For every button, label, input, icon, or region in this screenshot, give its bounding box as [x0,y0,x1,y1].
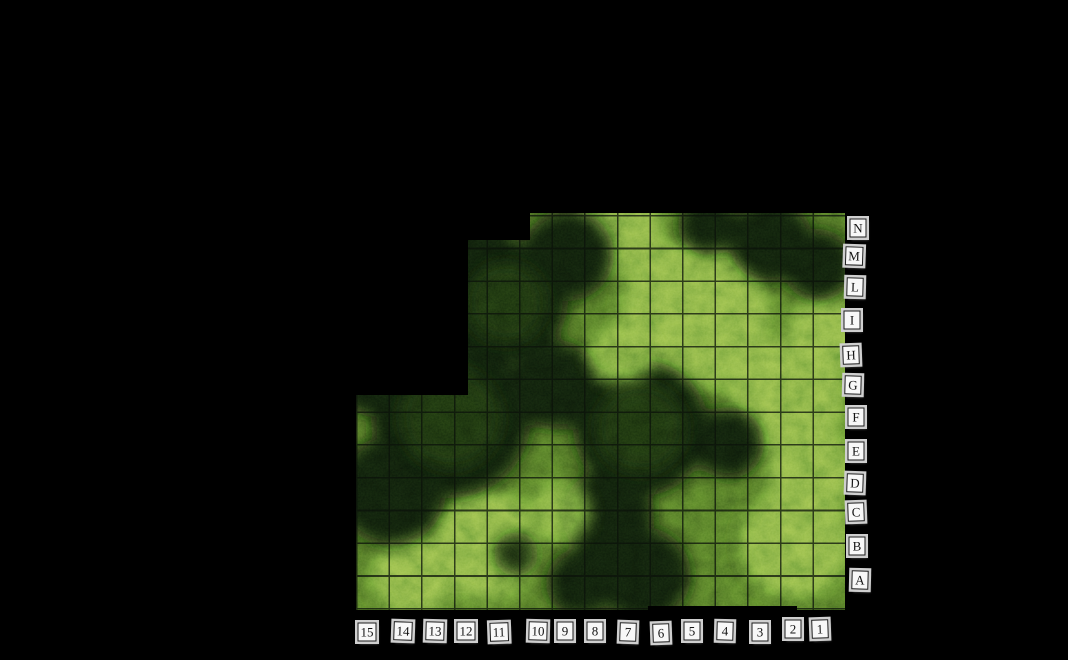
row-label: G [844,375,861,394]
canvas-background: NMLIHGFEDCBA 151413121110987654321 [0,0,1068,660]
column-label: 10 [528,621,547,640]
column-label: 7 [619,622,637,642]
column-label: 3 [752,623,769,642]
row-label: L [846,277,863,296]
column-label: 1 [811,619,829,639]
row-label: I [844,311,861,330]
column-label: 12 [457,622,476,641]
column-label: 9 [557,622,574,641]
map-edge-mask-top [356,213,530,240]
row-label: B [849,537,866,556]
column-label: 14 [393,621,413,641]
row-label: F [848,408,865,427]
column-label: 6 [652,623,670,643]
row-label: A [851,570,868,589]
row-label: D [846,473,864,493]
row-label: N [850,219,867,238]
column-label: 5 [684,622,701,641]
column-label: 8 [587,622,604,641]
column-label: 4 [716,621,733,640]
column-label: 13 [425,621,444,640]
map-edge-mask-bottom [648,606,797,610]
column-label: 2 [785,620,802,639]
column-label: 15 [358,623,377,642]
map-edge-mask-left [356,240,468,395]
row-label: E [848,442,865,461]
row-label: M [845,246,863,266]
column-label: 11 [489,622,508,642]
battle-map[interactable] [356,213,845,610]
row-label: C [847,502,865,522]
